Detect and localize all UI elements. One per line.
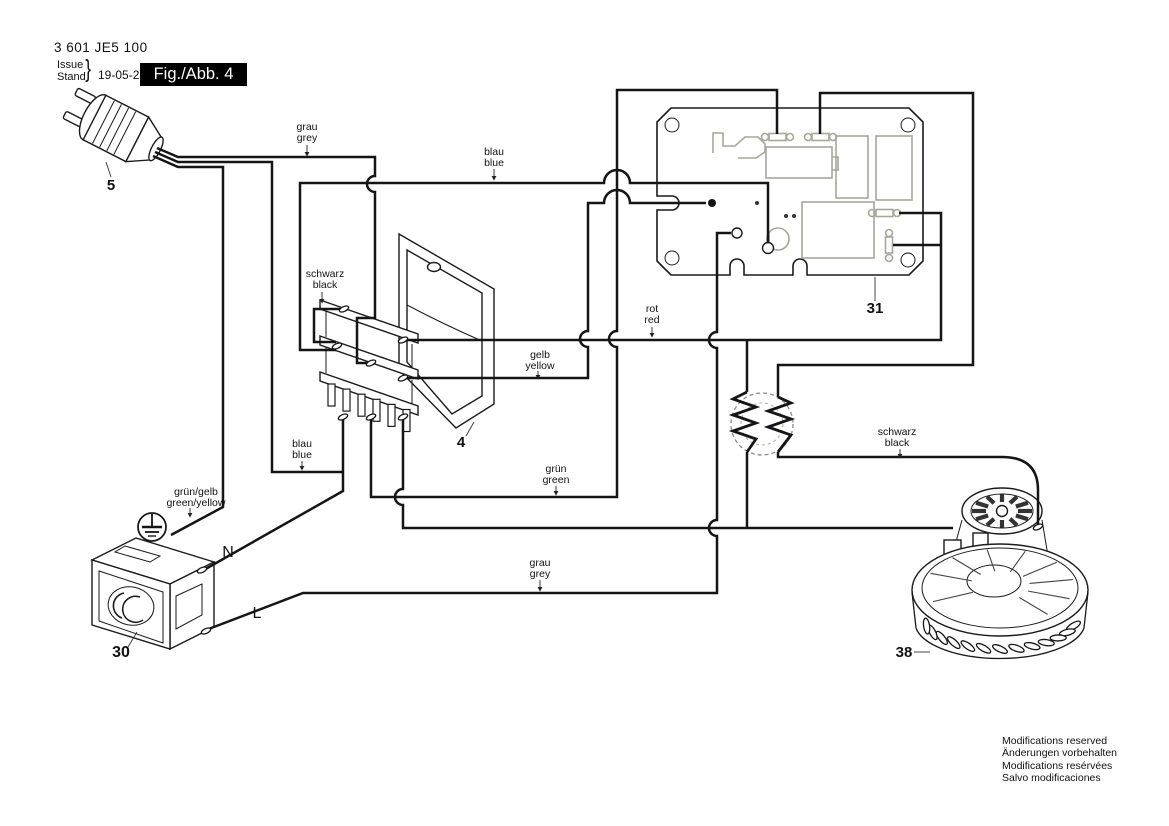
pcb-terminal-hole bbox=[763, 243, 774, 254]
label-schwarz-switch-en: black bbox=[313, 279, 338, 291]
wire-green-yellow bbox=[153, 156, 223, 535]
label-gruen-en: green bbox=[543, 474, 570, 486]
label-grau-top-en: grey bbox=[297, 132, 318, 144]
rocker-switch bbox=[320, 234, 494, 432]
item-number-motor: 38 bbox=[896, 644, 913, 661]
circuit-board bbox=[657, 108, 923, 275]
label-line: L bbox=[253, 605, 262, 622]
motor-turbine-rim bbox=[912, 544, 1088, 636]
label-gelb-en: yellow bbox=[525, 360, 555, 372]
item-number-socket: 30 bbox=[112, 644, 130, 661]
item-number-switch: 4 bbox=[457, 434, 466, 451]
choke-left-winding bbox=[733, 392, 756, 452]
pcb-test-point bbox=[755, 201, 759, 205]
item-number-pcb: 31 bbox=[867, 300, 884, 317]
motor-shaft-nut bbox=[997, 506, 1008, 517]
leader-plug bbox=[106, 162, 111, 177]
label-schwarz-motor-en: black bbox=[885, 437, 910, 449]
label-gruen-gelb-en: green/yellow bbox=[167, 497, 226, 509]
item-number-plug: 5 bbox=[107, 177, 115, 194]
label-blau-bottom-en: blue bbox=[292, 449, 312, 461]
leader-switch bbox=[466, 422, 474, 436]
power-plug bbox=[58, 83, 171, 174]
pcb-test-point bbox=[792, 214, 796, 218]
earth-ground-symbol bbox=[138, 513, 166, 541]
label-blau-top-en: blue bbox=[484, 157, 504, 169]
label-neutral: N bbox=[222, 544, 234, 561]
suction-motor bbox=[912, 488, 1088, 658]
wiring-diagram-page: 3 601 JE5 100 Issue Stand } 19-05-29 Fig… bbox=[0, 0, 1169, 826]
label-rot-en: red bbox=[644, 314, 659, 326]
pcb-solder-terminal bbox=[708, 199, 716, 207]
wire-grau-top bbox=[157, 148, 375, 363]
pcb-test-point bbox=[784, 214, 788, 218]
wire-motor-left bbox=[395, 416, 953, 528]
pcb-terminal-hole bbox=[732, 228, 742, 238]
power-socket bbox=[92, 538, 214, 649]
schematic-drawing: grau grey blau blue schwarz black gelb y… bbox=[0, 0, 1169, 826]
switch-pivot-hole bbox=[428, 263, 441, 272]
label-grau-bottom-en: grey bbox=[530, 568, 551, 580]
